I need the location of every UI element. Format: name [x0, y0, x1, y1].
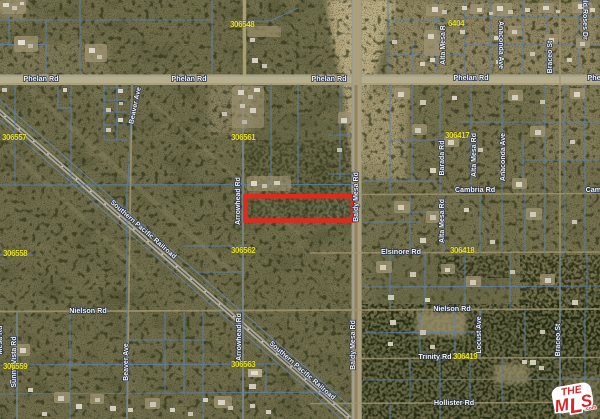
svg-text:Cambria: Cambria [586, 185, 600, 194]
svg-text:Trinity Rd: Trinity Rd [418, 352, 451, 361]
svg-text:306548: 306548 [230, 20, 255, 29]
svg-text:Anaconda Ave: Anaconda Ave [500, 133, 507, 181]
svg-text:Locust Ave: Locust Ave [476, 316, 483, 353]
svg-text:Braceo St: Braceo St [547, 40, 554, 73]
svg-text:306418: 306418 [450, 246, 475, 255]
svg-text:Alta Mesa Rd: Alta Mesa Rd [439, 199, 446, 243]
svg-text:Phelan Rd: Phelan Rd [587, 73, 600, 82]
svg-text:306558: 306558 [3, 249, 28, 258]
svg-text:Alta Mesa R: Alta Mesa R [440, 25, 447, 65]
svg-text:306561: 306561 [231, 133, 256, 142]
svg-text:Phelan Rd: Phelan Rd [23, 74, 58, 83]
svg-text:Phelan Rd: Phelan Rd [311, 74, 346, 83]
svg-text:Baldy Mesa Rd: Baldy Mesa Rd [350, 320, 357, 370]
svg-text:Beaver Ave: Beaver Ave [123, 343, 130, 381]
svg-text:Cambria Rd: Cambria Rd [455, 185, 495, 194]
svg-text:306563: 306563 [231, 360, 256, 369]
svg-text:Elsinore Rd: Elsinore Rd [381, 247, 421, 256]
svg-text:Hollister Rd: Hollister Rd [434, 398, 474, 407]
svg-text:306419: 306419 [453, 352, 478, 361]
svg-text:Nielson Rd: Nielson Rd [433, 304, 471, 313]
svg-text:Alta Mesa Rd: Alta Mesa Rd [471, 133, 478, 177]
svg-text:6404: 6404 [448, 19, 465, 28]
svg-text:306417: 306417 [445, 131, 470, 140]
svg-text:Arrowhead Rd: Arrowhead Rd [236, 313, 243, 361]
svg-text:Barada Rd: Barada Rd [439, 140, 446, 175]
svg-text:Mesa Rd: Mesa Rd [0, 326, 4, 355]
svg-text:Phelan Rd: Phelan Rd [453, 73, 488, 82]
svg-text:Baldy Mesa Rd: Baldy Mesa Rd [353, 172, 360, 222]
svg-text:Phelan Rd: Phelan Rd [171, 74, 206, 83]
svg-text:Braceo St: Braceo St [555, 323, 562, 356]
svg-text:Anaconda Ave: Anaconda Ave [497, 21, 504, 69]
svg-text:Arrowhead Rd: Arrowhead Rd [235, 177, 242, 225]
svg-text:306562: 306562 [231, 246, 256, 255]
svg-text:306557: 306557 [2, 133, 27, 142]
svg-text:Wild Roses Dr: Wild Roses Dr [581, 0, 588, 40]
svg-text:306559: 306559 [3, 362, 28, 371]
svg-text:Nielson Rd: Nielson Rd [69, 306, 107, 315]
